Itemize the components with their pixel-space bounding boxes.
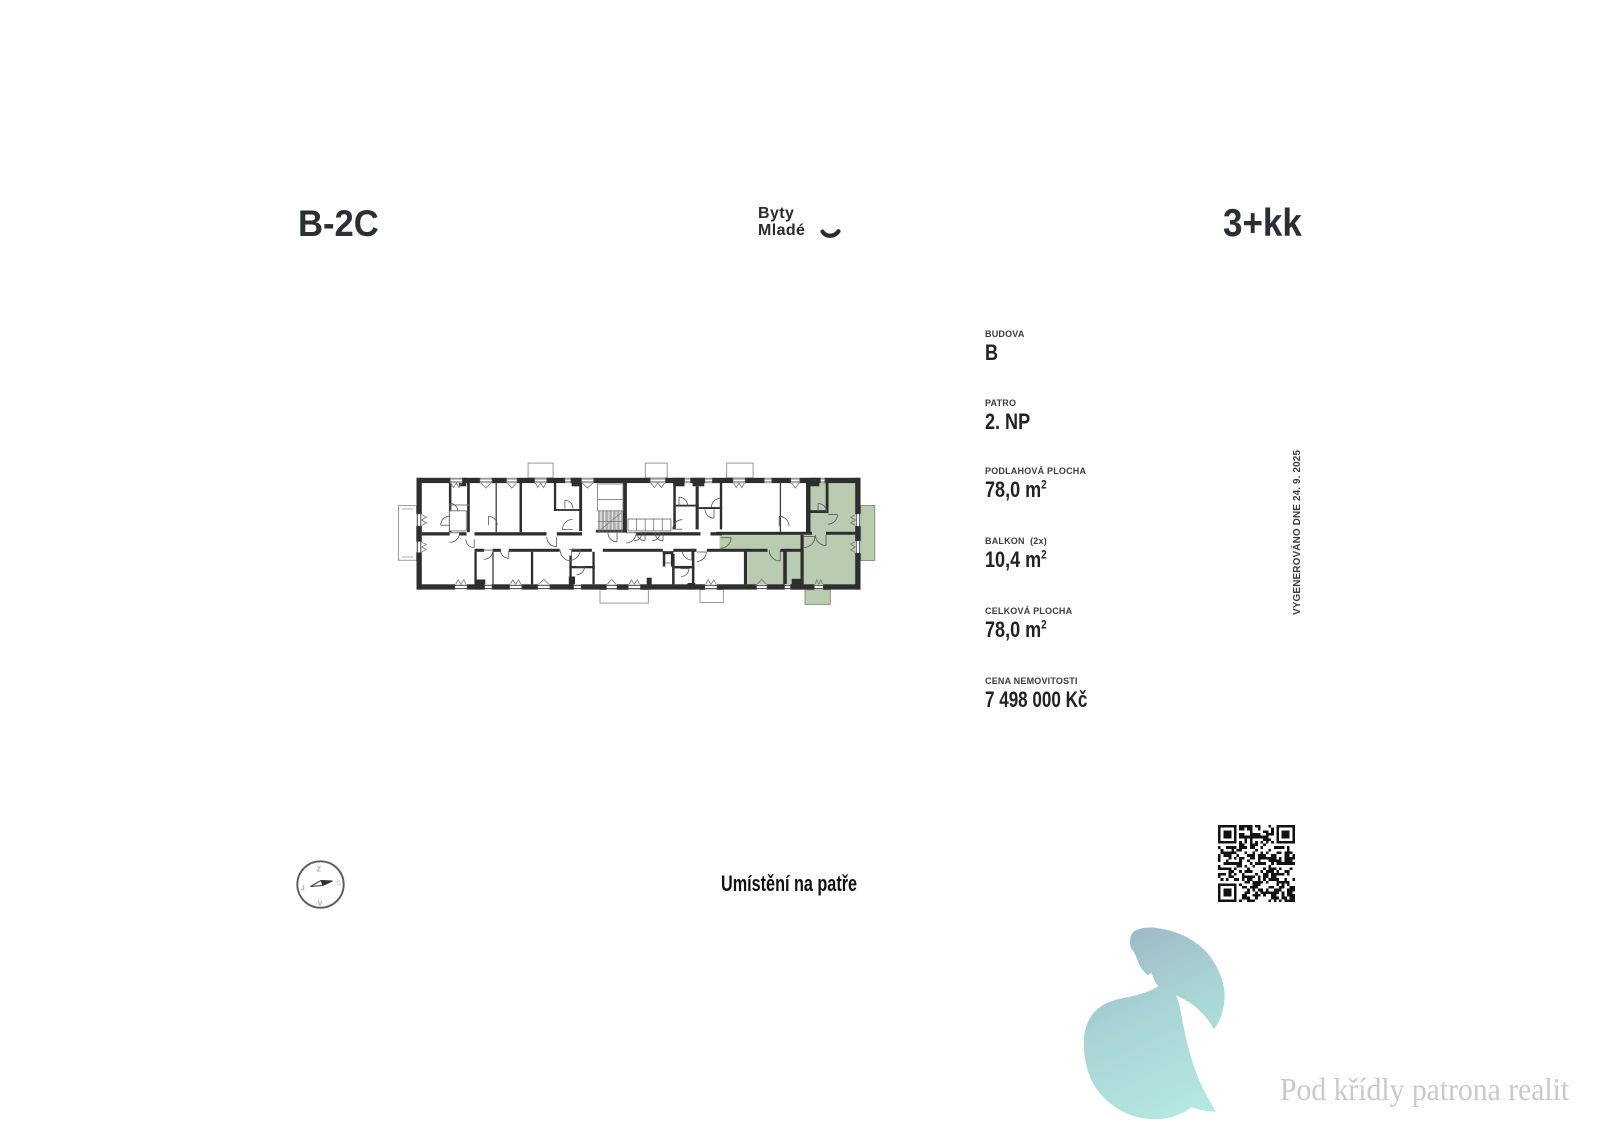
svg-text:V: V [318,899,323,908]
svg-text:J: J [301,884,305,893]
svg-text:Z: Z [317,865,322,874]
svg-text:S: S [336,879,341,888]
